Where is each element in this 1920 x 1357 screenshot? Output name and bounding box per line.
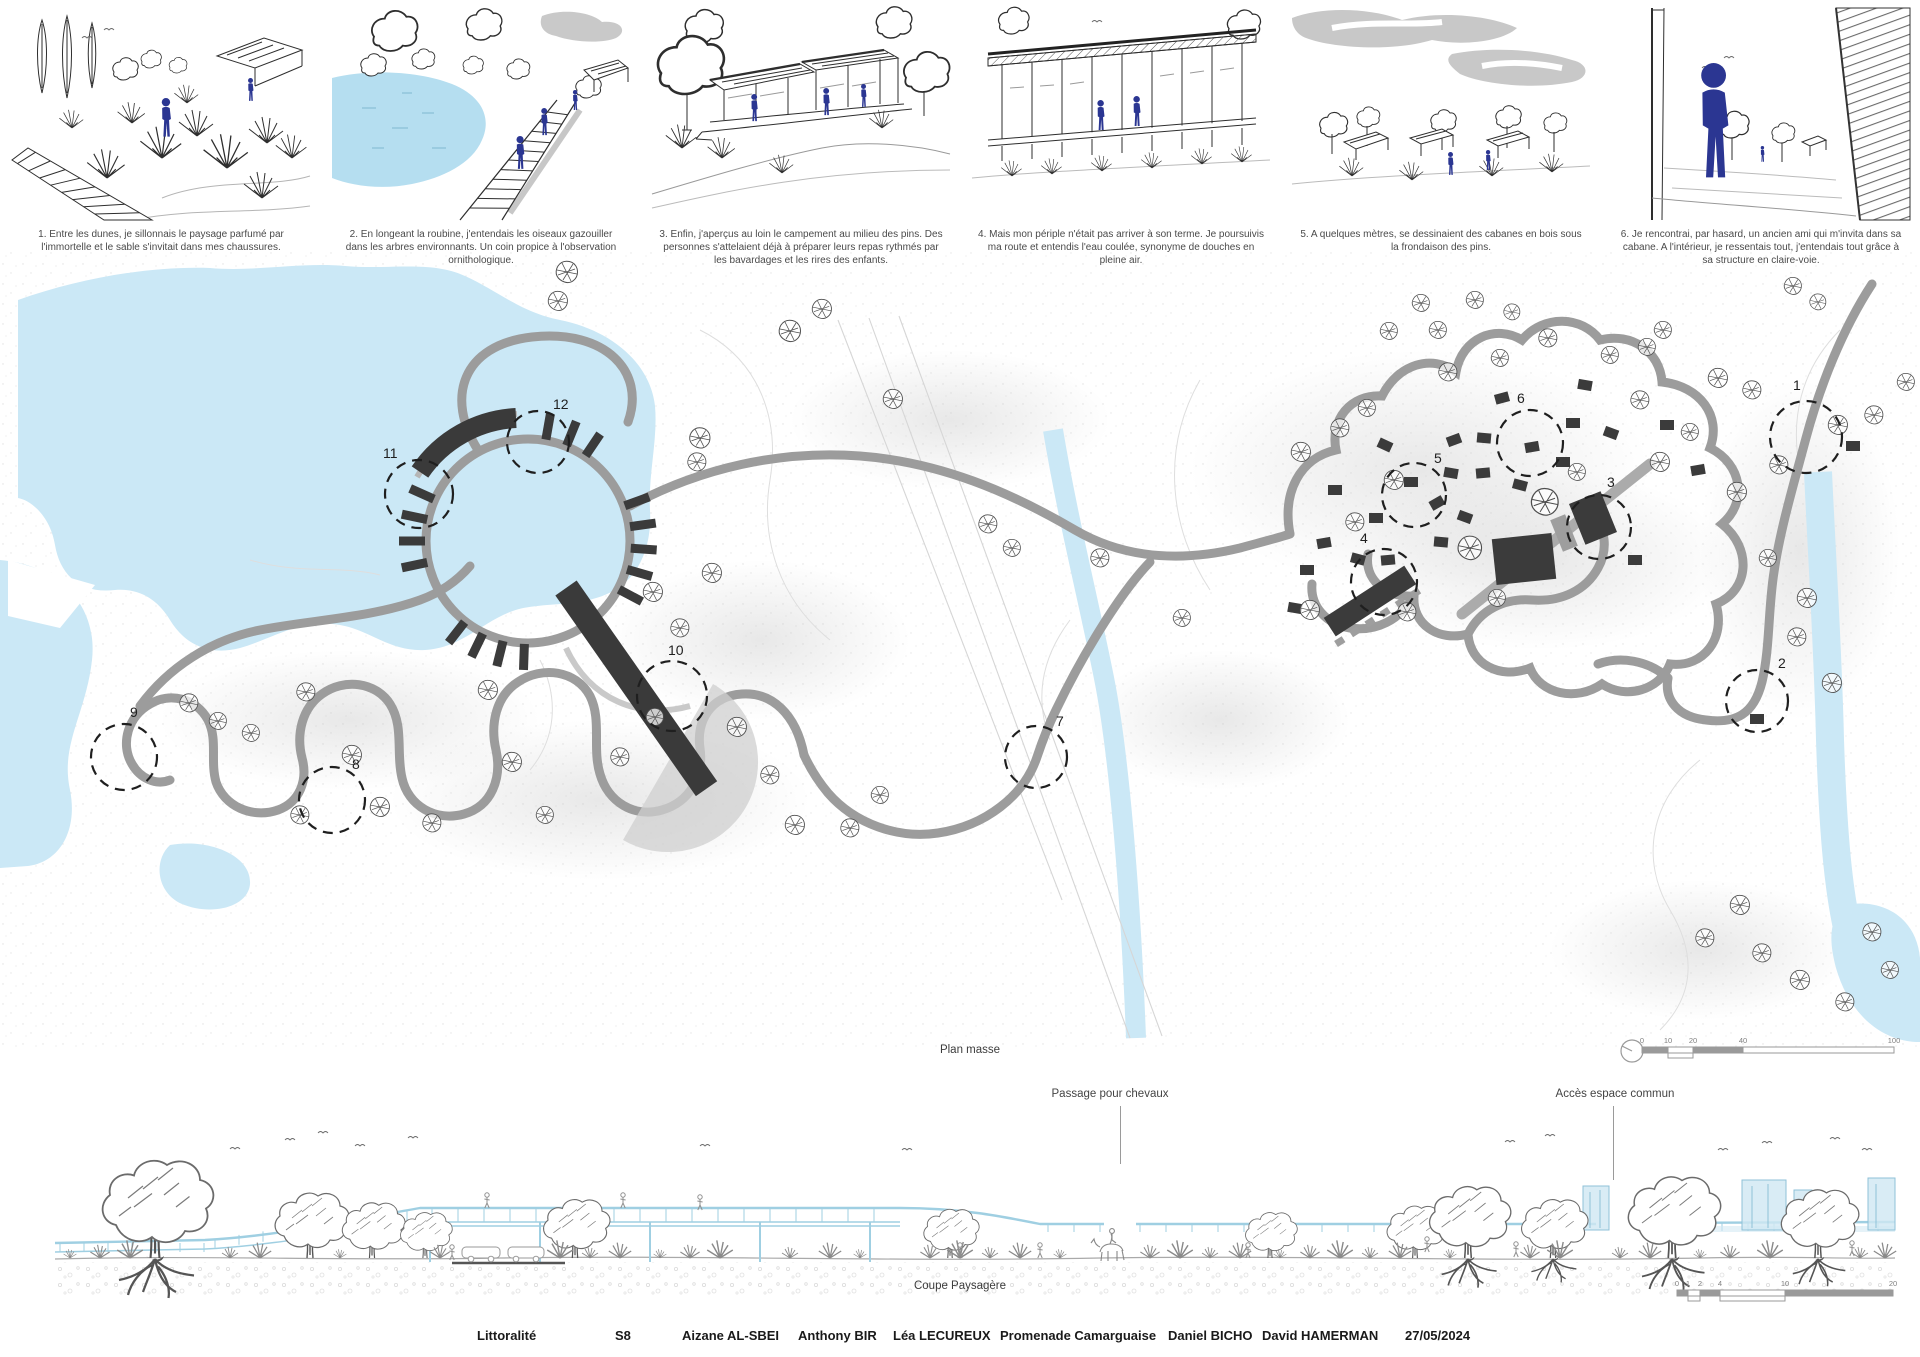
cabin: [1628, 555, 1642, 565]
section-tree: [544, 1200, 610, 1258]
bird: [318, 1132, 328, 1134]
bird: [1718, 1149, 1728, 1151]
tree-symbol: [1790, 970, 1809, 989]
shrub: [854, 1249, 867, 1258]
tree-symbol: [779, 320, 800, 341]
svg-text:0: 0: [1640, 1036, 1644, 1045]
section-tree: [275, 1193, 349, 1258]
svg-text:4: 4: [1718, 1279, 1722, 1288]
cabin: [1328, 485, 1342, 495]
tree-symbol: [1759, 549, 1776, 566]
tree-symbol: [548, 291, 567, 310]
tree-symbol: [1727, 482, 1746, 501]
tree-symbol: [1173, 609, 1190, 626]
tree-symbol: [1358, 399, 1375, 416]
tree-symbol: [556, 261, 577, 282]
person-figure: [162, 98, 171, 137]
bird: [1545, 1135, 1555, 1137]
tree-symbol: [1531, 489, 1558, 516]
plan-marker-number: 1: [1793, 377, 1801, 393]
tree-symbol: [242, 724, 259, 741]
vignette-3-illustration: [652, 8, 950, 220]
svg-text:10: 10: [1664, 1036, 1672, 1045]
footer-item: Anthony BIR: [798, 1328, 877, 1343]
footer-item: Littoralité: [477, 1328, 536, 1343]
tree-symbol: [1897, 373, 1914, 390]
tree-symbol: [1863, 923, 1881, 941]
shrub: [222, 1247, 238, 1258]
tree-symbol: [979, 515, 997, 533]
plan-marker-number: 12: [553, 396, 569, 412]
footer-item: Promenade Camarguaise: [1000, 1328, 1156, 1343]
birds: [230, 1132, 1872, 1151]
shrub: [1639, 1243, 1661, 1258]
tree-symbol: [1003, 539, 1020, 556]
plan-marker-number: 3: [1607, 474, 1615, 490]
tree-symbol: [423, 814, 441, 832]
person-figure: [1097, 100, 1104, 130]
person-figure: [1701, 63, 1728, 177]
tree-symbol: [1488, 589, 1505, 606]
cabin: [1660, 420, 1674, 430]
cabin: [1846, 441, 1860, 451]
vignette-2-illustration: [332, 8, 630, 220]
plan-marker-number: 6: [1517, 390, 1525, 406]
tree-symbol: [478, 680, 497, 699]
tree-symbol: [646, 708, 663, 725]
vignette-5-illustration: [1292, 8, 1590, 220]
footer-item: Aizane AL-SBEI: [682, 1328, 779, 1343]
bird: [902, 1149, 912, 1151]
tree-symbol: [1865, 406, 1883, 424]
svg-text:2: 2: [1698, 1279, 1702, 1288]
cabin: [1404, 477, 1418, 487]
person-figure: [541, 108, 547, 135]
tree-symbol: [1810, 294, 1826, 310]
tree-symbol: [1291, 442, 1310, 461]
svg-text:0: 0: [1675, 1279, 1679, 1288]
shrub: [1874, 1243, 1896, 1258]
person-figure: [1448, 152, 1453, 175]
cabin: [1477, 432, 1492, 443]
vignette-1-illustration: [12, 8, 310, 220]
svg-text:100: 100: [1888, 1036, 1901, 1045]
vignette-6-illustration: [1612, 8, 1910, 220]
shrub: [1694, 1249, 1707, 1258]
svg-text:10: 10: [1781, 1279, 1789, 1288]
tree-symbol: [643, 582, 662, 601]
shrub: [1720, 1245, 1739, 1258]
tree-symbol: [1743, 381, 1761, 399]
tree-symbol: [1836, 993, 1854, 1011]
shrub: [1009, 1243, 1031, 1258]
tree-symbol: [1491, 349, 1508, 366]
tree-symbol: [1458, 536, 1482, 559]
cabin: [1381, 554, 1396, 565]
shrub: [64, 1249, 77, 1258]
person-silhouette: [449, 1245, 454, 1260]
tree-symbol: [1439, 363, 1457, 381]
tree-symbol: [812, 299, 831, 318]
tree-symbol: [611, 748, 629, 766]
tree-symbol: [671, 619, 689, 637]
tree-symbol: [1331, 419, 1349, 437]
shrub: [1362, 1247, 1378, 1258]
plan-marker-number: 8: [352, 756, 360, 772]
tree-symbol: [1568, 463, 1585, 480]
tree-symbol: [502, 752, 521, 771]
shrub: [1300, 1245, 1319, 1258]
tree-symbol: [297, 683, 315, 701]
bird: [1830, 1138, 1840, 1140]
tree-symbol: [1822, 673, 1841, 692]
tree-symbol: [688, 453, 706, 471]
tree-symbol: [1539, 329, 1557, 347]
site-plan: 123456789101112 0102040100: [0, 250, 1920, 1085]
tree-symbol: [1466, 291, 1483, 308]
tree-symbol: [1650, 452, 1669, 471]
cabin: [1750, 714, 1764, 724]
tree-symbol: [883, 389, 902, 408]
person-figure: [1133, 96, 1140, 126]
tree-symbol: [727, 717, 746, 736]
plan-marker-number: 11: [383, 445, 398, 461]
presentation-board: 1. Entre les dunes, je sillonnais le pay…: [0, 0, 1920, 1357]
tree-symbol: [761, 766, 779, 784]
tree-symbol: [1696, 929, 1714, 947]
svg-text:20: 20: [1689, 1036, 1697, 1045]
tree-symbol: [1091, 549, 1109, 567]
person-figure: [751, 94, 757, 121]
shrub: [609, 1243, 631, 1258]
bird: [700, 1145, 710, 1147]
tree-symbol: [1784, 277, 1801, 294]
tree-symbol: [1708, 368, 1727, 387]
person-figure: [573, 90, 578, 110]
person-silhouette: [1037, 1243, 1042, 1258]
person-silhouette: [1513, 1242, 1518, 1257]
footer-item: David HAMERMAN: [1262, 1328, 1378, 1343]
svg-text:40: 40: [1739, 1036, 1747, 1045]
section-tree: [1781, 1190, 1859, 1258]
tree-symbol: [1384, 470, 1403, 489]
shrub: [819, 1243, 841, 1258]
bird: [408, 1137, 418, 1139]
tree-symbol: [785, 815, 804, 834]
plan-marker-number: 5: [1434, 450, 1442, 466]
footer-item: 27/05/2024: [1405, 1328, 1470, 1343]
person-figure: [1486, 150, 1491, 170]
tree-symbol: [1788, 628, 1806, 646]
shrub: [1054, 1249, 1067, 1258]
section-tree: [103, 1161, 214, 1258]
tree-symbol: [1753, 944, 1771, 962]
tree-symbol: [871, 786, 888, 803]
shrub: [334, 1249, 347, 1258]
tree-symbol: [1380, 322, 1397, 339]
person-figure: [248, 78, 253, 101]
tree-symbol: [841, 819, 859, 837]
person-figure: [1761, 146, 1765, 162]
bird: [230, 1148, 240, 1150]
tree-symbol: [1681, 423, 1698, 440]
shrub: [1327, 1240, 1353, 1258]
shrub: [782, 1247, 798, 1258]
plan-marker-number: 4: [1360, 530, 1368, 546]
shrub: [707, 1240, 733, 1258]
tree-symbol: [690, 428, 710, 448]
tree-symbol: [1346, 513, 1364, 531]
tree-symbol: [1638, 338, 1655, 355]
plan-marker-number: 7: [1056, 713, 1064, 729]
car: [462, 1247, 544, 1262]
cabin: [1476, 467, 1491, 478]
person-figure: [516, 136, 524, 169]
section-title: Coupe Paysagère: [880, 1280, 1040, 1292]
horse-rider: [1091, 1229, 1124, 1261]
bird: [355, 1145, 365, 1147]
bird: [1505, 1141, 1515, 1143]
cabin: [1566, 418, 1580, 428]
shrub: [1612, 1247, 1628, 1258]
section-tree: [342, 1203, 405, 1258]
cabin: [1369, 513, 1383, 523]
tree-symbol: [1770, 456, 1788, 474]
shrub: [982, 1247, 998, 1258]
tree-symbol: [1797, 588, 1816, 607]
shrub: [1202, 1247, 1218, 1258]
bird: [1862, 1149, 1872, 1151]
bird: [285, 1139, 295, 1141]
person-silhouette: [484, 1193, 489, 1208]
plan-marker-number: 2: [1778, 655, 1786, 671]
section-tree: [1430, 1187, 1511, 1258]
shrub: [1167, 1240, 1193, 1258]
person-silhouette: [1245, 1243, 1250, 1258]
footer-item: Léa LECUREUX: [893, 1328, 991, 1343]
vignette-4-illustration: [972, 8, 1270, 220]
tree-symbol: [1730, 895, 1749, 914]
plan-marker-number: 9: [130, 704, 138, 720]
footer-item: Daniel BICHO: [1168, 1328, 1253, 1343]
title-block: LittoralitéS8Aizane AL-SBEIAnthony BIRLé…: [0, 1328, 1920, 1352]
shrub: [1140, 1245, 1159, 1258]
section-tree: [1628, 1177, 1720, 1258]
shrub: [654, 1249, 667, 1258]
tree-symbol: [370, 797, 389, 816]
tree-symbol: [1881, 961, 1898, 978]
tree-symbol: [1429, 321, 1446, 338]
svg-text:1: 1: [1686, 1279, 1690, 1288]
tree-symbol: [209, 712, 226, 729]
tree-symbol: [536, 806, 553, 823]
tree-symbol: [180, 694, 198, 712]
bird: [1762, 1142, 1772, 1144]
tree-symbol: [1300, 600, 1319, 619]
section-shrubs: [64, 1240, 1897, 1258]
tree-symbol: [1412, 294, 1429, 311]
tree-symbol: [702, 563, 721, 582]
plan-marker-number: 10: [668, 642, 684, 658]
person-silhouette: [620, 1193, 625, 1208]
cabin: [1434, 536, 1449, 547]
footer-item: S8: [615, 1328, 631, 1343]
shrub: [117, 1240, 143, 1258]
plan-title: Plan masse: [890, 1044, 1050, 1056]
section-tree: [1246, 1213, 1298, 1258]
tree-symbol: [1601, 346, 1618, 363]
cabin: [1300, 565, 1314, 575]
shrub: [680, 1245, 699, 1258]
svg-text:20: 20: [1889, 1279, 1897, 1288]
shrub: [1757, 1240, 1783, 1258]
tree-symbol: [1631, 391, 1649, 409]
shrub: [1444, 1249, 1457, 1258]
tree-symbol: [1654, 321, 1671, 338]
shrub: [1852, 1247, 1868, 1258]
person-figure: [861, 84, 866, 107]
tree-symbol: [1504, 304, 1520, 320]
